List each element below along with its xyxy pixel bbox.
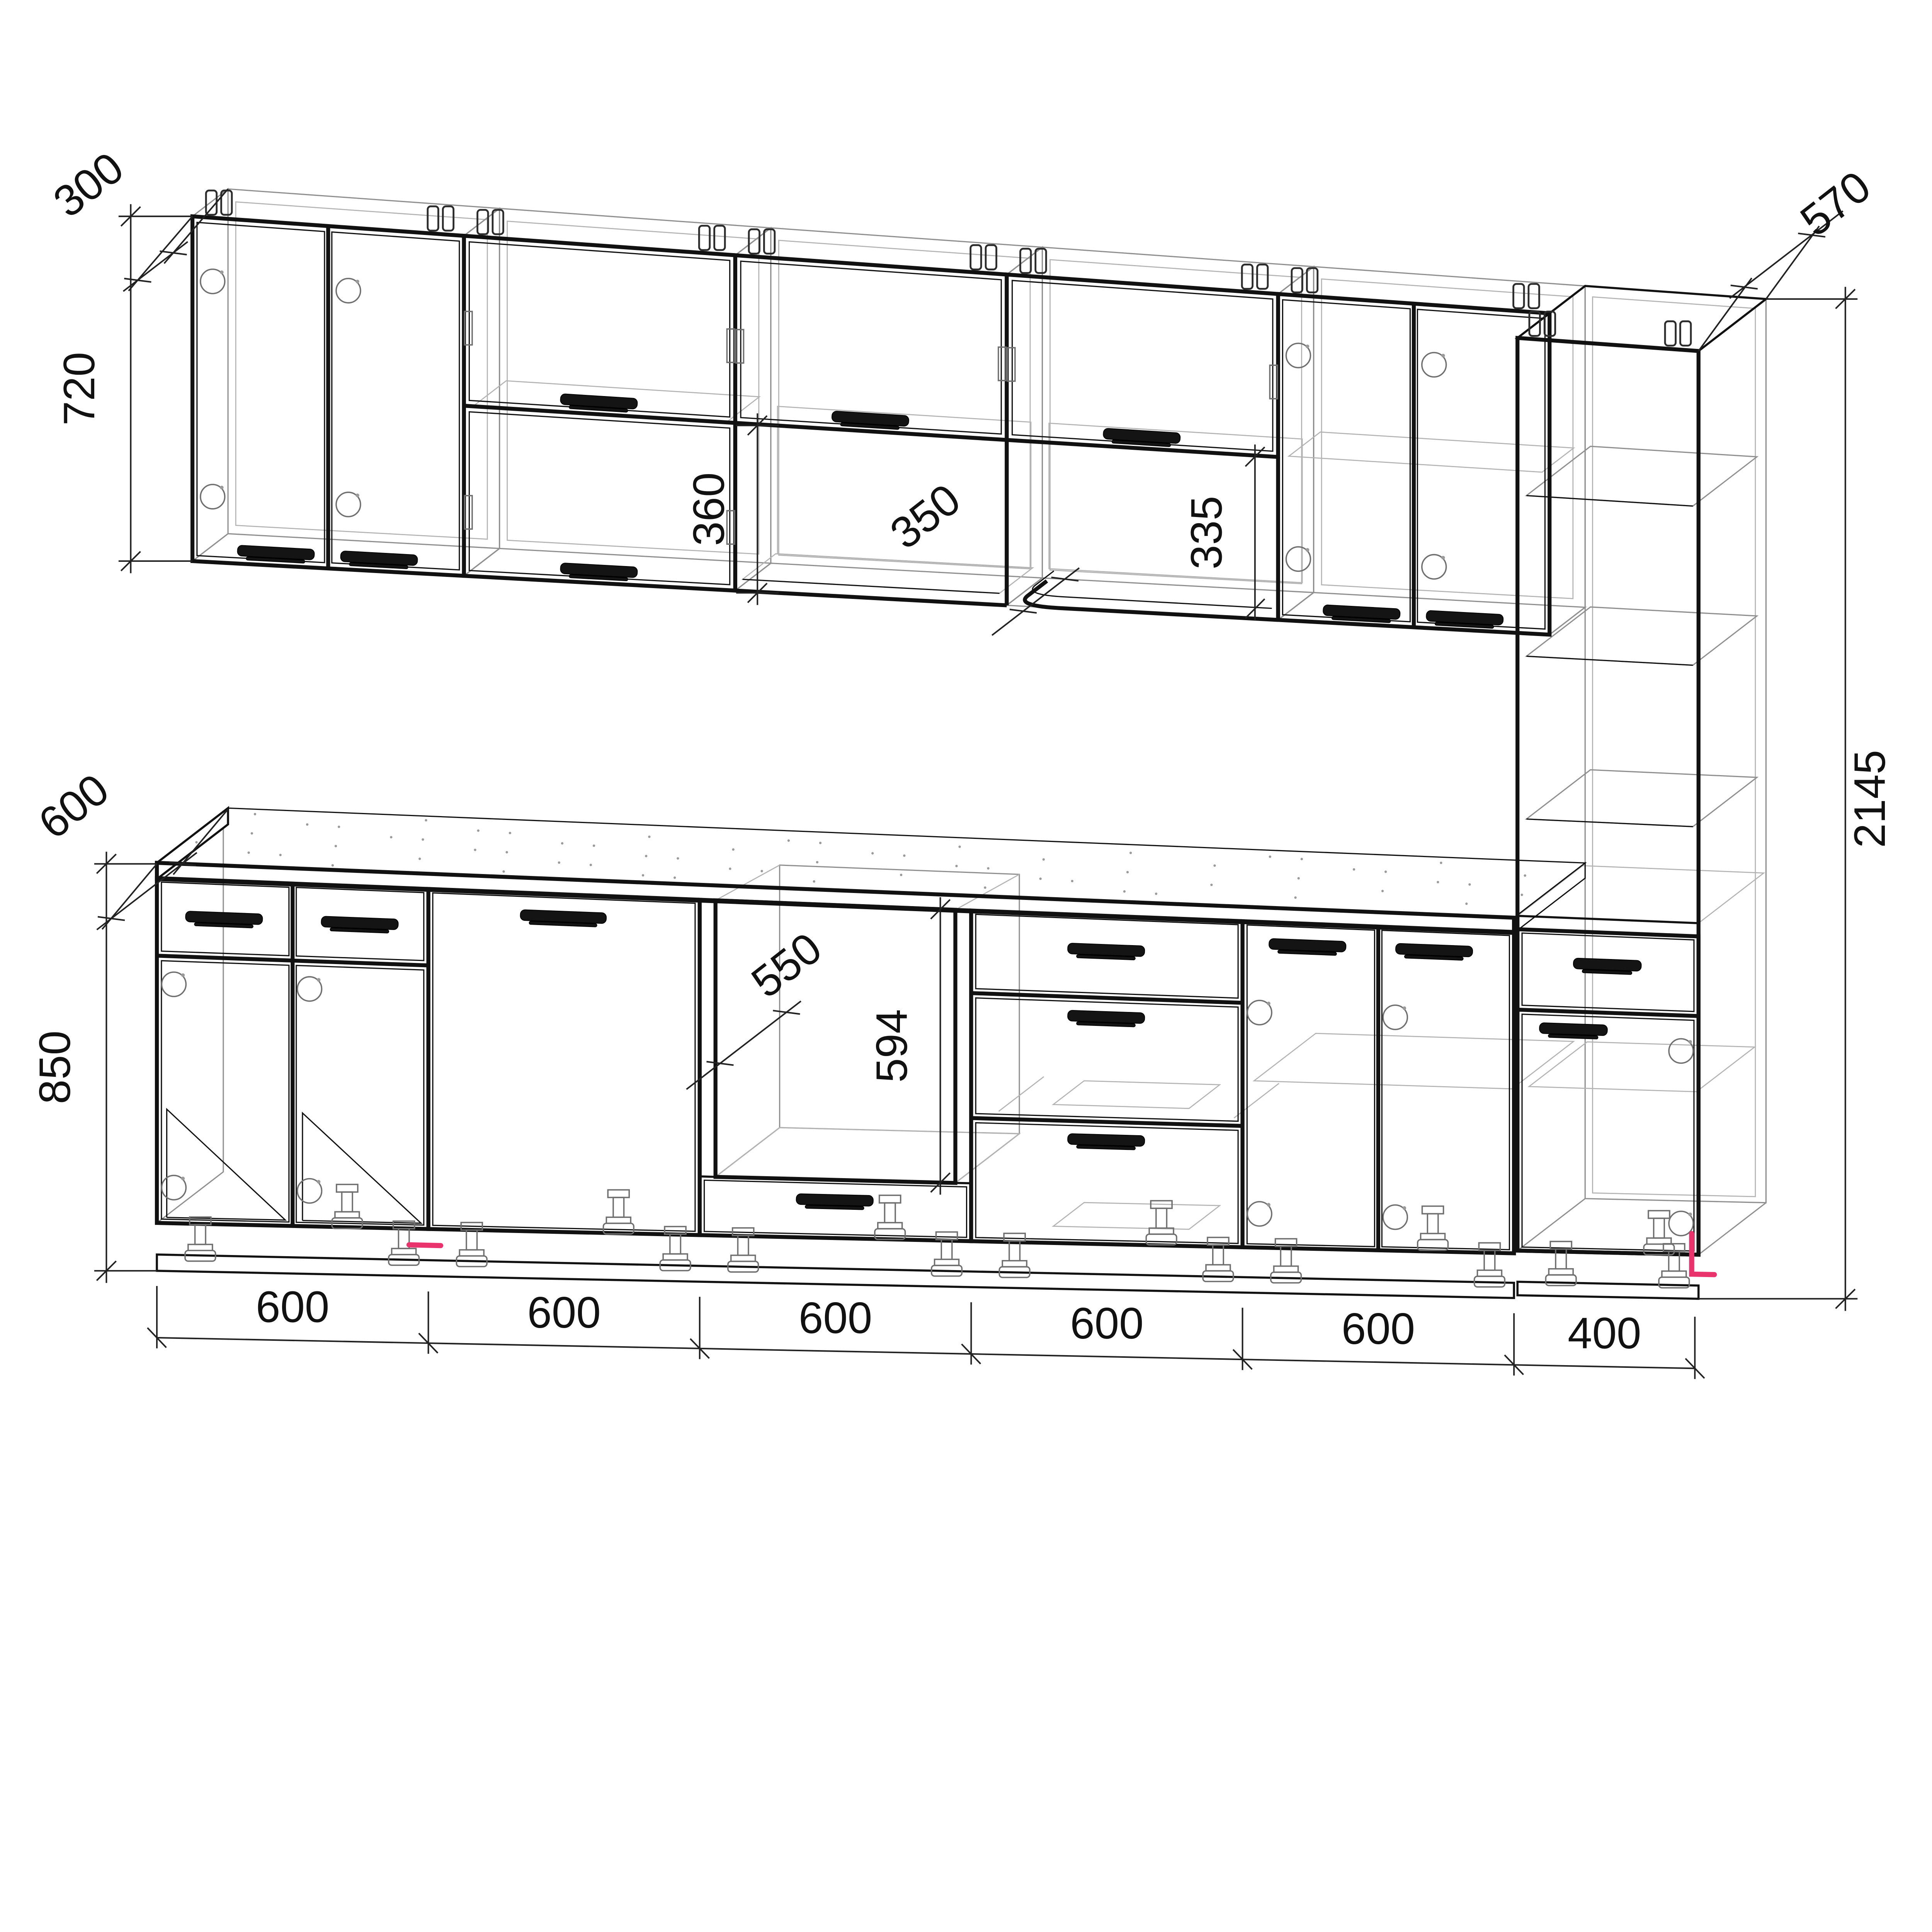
counter-speckle xyxy=(1520,894,1523,896)
dim-label-base-height: 850 xyxy=(31,1031,80,1104)
counter-speckle xyxy=(1301,858,1303,860)
counter-speckle xyxy=(1524,874,1526,877)
back-panel xyxy=(236,202,487,539)
tall-mid-board xyxy=(1517,916,1699,923)
counter-speckle xyxy=(787,839,790,842)
counter-speckle xyxy=(502,870,505,872)
door-handle xyxy=(1323,605,1400,623)
hinge-screw xyxy=(355,493,359,497)
technical-drawing-page: 7203006008503603503355702145550594600600… xyxy=(0,0,1932,1581)
adjustable-foot-icon xyxy=(1644,1211,1674,1255)
hinge-screw xyxy=(1267,1203,1270,1206)
dim-tick xyxy=(773,1010,800,1014)
flap-door xyxy=(1007,275,1278,457)
wall-cabinet-5 xyxy=(1278,294,1550,635)
counter-speckle xyxy=(418,857,421,860)
line xyxy=(955,1183,971,1183)
hinge-screw xyxy=(220,270,223,274)
dim-label-oven-depth: 550 xyxy=(743,923,831,1007)
accent-mark xyxy=(409,1245,441,1246)
adjustable-foot-icon xyxy=(1418,1206,1448,1250)
carcass-front xyxy=(429,889,700,1235)
counter-speckle xyxy=(648,835,650,838)
door-handle xyxy=(796,1194,873,1210)
dim-label-bottom-width-1: 600 xyxy=(256,1283,329,1332)
dim-label-open-shelf-height: 335 xyxy=(1182,496,1231,569)
counter-speckle xyxy=(425,819,427,821)
hanging-bracket-icon xyxy=(714,226,725,250)
plinth-band xyxy=(157,1255,1514,1298)
drawer-split xyxy=(971,1118,1242,1126)
door-inset xyxy=(162,961,289,1222)
back-panel xyxy=(1321,279,1573,599)
flap-door-inset xyxy=(1012,281,1273,451)
handle-bar xyxy=(1068,1134,1145,1146)
counter-speckle xyxy=(958,845,961,848)
hinge-screw xyxy=(317,1180,320,1184)
hinge-screw xyxy=(1441,556,1445,560)
hanging-bracket-icon xyxy=(699,226,710,250)
counter-speckle xyxy=(813,880,815,883)
back-panel xyxy=(1050,260,1302,584)
countertop-left-cap xyxy=(157,808,228,879)
line xyxy=(716,865,780,900)
counter-speckle xyxy=(247,851,250,854)
counter-speckle xyxy=(338,826,340,828)
counter-speckle xyxy=(561,842,563,844)
dim-tick xyxy=(1010,609,1037,613)
counter-speckle xyxy=(195,841,197,844)
dim-label-bottom-width-4: 600 xyxy=(1070,1299,1143,1348)
counter-speckle xyxy=(306,823,308,826)
carcass-front xyxy=(971,910,1242,1247)
counter-speckle xyxy=(729,867,731,870)
line xyxy=(1699,278,1752,351)
dim-label-oven-height: 594 xyxy=(867,1009,917,1083)
hardware-layer xyxy=(162,190,1693,1288)
base-cabinet-3 xyxy=(700,900,971,1242)
curved-shelf-edge xyxy=(1025,581,1278,620)
carcass-front xyxy=(1517,929,1699,1255)
door-handle xyxy=(560,563,638,582)
door-handle xyxy=(340,551,418,570)
counter-speckle xyxy=(279,854,282,856)
door-swing-mark xyxy=(303,1113,421,1223)
hinge-screw xyxy=(220,486,223,489)
adjustable-foot-icon xyxy=(1146,1201,1177,1245)
door-handle xyxy=(1395,943,1473,961)
hinge-screw xyxy=(181,1177,185,1180)
shelf xyxy=(1289,432,1574,472)
door-inset xyxy=(332,232,459,570)
hanging-bracket-icon xyxy=(1242,265,1253,289)
counter-speckle xyxy=(506,851,508,853)
adjustable-foot-icon xyxy=(932,1232,962,1276)
flap-inset xyxy=(469,242,730,417)
dim-label-wall-height: 720 xyxy=(55,352,104,425)
dim-label-tall-depth: 570 xyxy=(1791,162,1879,246)
hanging-bracket-icon xyxy=(428,206,439,231)
base-cabinet-4 xyxy=(971,910,1242,1247)
counter-speckle xyxy=(1468,883,1471,886)
hanging-bracket-icon xyxy=(764,229,775,253)
counter-speckle xyxy=(816,861,818,863)
base-cabinet-6 xyxy=(1517,929,1699,1255)
dim-label-wall-depth: 300 xyxy=(44,143,133,227)
hinge-screw xyxy=(355,280,359,283)
hinge-screw xyxy=(1688,1213,1692,1216)
line xyxy=(999,1077,1044,1111)
door-handle xyxy=(321,916,398,933)
flap-door-inset xyxy=(741,261,1001,434)
counter-speckle xyxy=(760,870,763,872)
bottom-dimension-line xyxy=(157,1338,1695,1368)
dim-label-counter-depth: 600 xyxy=(30,765,118,849)
door-inset xyxy=(296,965,424,1225)
door-inset xyxy=(197,223,325,563)
door-handle xyxy=(1426,611,1503,629)
hinge-screw xyxy=(181,973,185,977)
counter-speckle xyxy=(1465,903,1468,905)
hinge-screw xyxy=(1267,1002,1270,1005)
counter-speckle xyxy=(593,844,595,847)
counter-speckle xyxy=(1269,855,1271,858)
counter-speckle xyxy=(254,813,256,815)
wall-cabinet-4 xyxy=(1007,275,1278,620)
door-handle xyxy=(1573,958,1641,975)
countertop-top xyxy=(157,808,1585,918)
counter-speckle xyxy=(871,852,874,854)
oven-cavity xyxy=(716,900,956,1183)
counter-speckle xyxy=(673,876,676,879)
tall-shelf-edge xyxy=(1526,819,1693,827)
counter-speckle xyxy=(477,830,480,832)
counter-speckle xyxy=(1294,896,1296,899)
door-handle xyxy=(1269,939,1346,956)
hinge-screw xyxy=(1403,1206,1406,1210)
counter-speckle xyxy=(677,857,679,859)
counter-speckle xyxy=(251,832,253,835)
hinge-screw xyxy=(1441,354,1445,357)
counter-speckle xyxy=(558,861,560,864)
counter-speckle xyxy=(1043,858,1045,861)
counter-speckle xyxy=(645,855,647,857)
counter-speckle xyxy=(1353,868,1355,871)
hanging-bracket-icon xyxy=(1529,284,1539,308)
counter-speckle xyxy=(422,838,424,841)
tall-shelf xyxy=(1526,446,1757,506)
side-panel xyxy=(1549,286,1585,634)
counter-speckle xyxy=(987,867,989,869)
plinth-band xyxy=(1517,1282,1699,1299)
counter-speckle xyxy=(955,865,957,867)
handle-bar xyxy=(796,1194,873,1206)
dim-tick xyxy=(706,1062,733,1065)
door-swing-mark xyxy=(167,1109,286,1220)
carcass-front xyxy=(700,900,971,1242)
hanging-bracket-icon xyxy=(1307,268,1318,293)
hanging-bracket-icon xyxy=(1292,268,1303,293)
wall-cabinet-3 xyxy=(735,255,1007,605)
dim-label-niche-height: 360 xyxy=(685,473,734,546)
counter-speckle xyxy=(903,854,905,857)
line xyxy=(1766,226,1819,299)
door-inset xyxy=(433,893,695,1231)
counter-speckle xyxy=(1123,890,1126,893)
line xyxy=(687,1001,801,1089)
dim-label-bottom-width-6: 400 xyxy=(1568,1309,1641,1358)
door-inset xyxy=(1417,310,1545,629)
door-handle xyxy=(1539,1023,1607,1039)
base-cabinet-2 xyxy=(429,889,700,1235)
tall-mid-top xyxy=(1517,866,1764,923)
door-handle xyxy=(520,910,607,927)
adjustable-foot-icon xyxy=(999,1233,1030,1277)
side-panel xyxy=(192,189,228,561)
counter-speckle xyxy=(1155,893,1157,895)
handle-bar xyxy=(1573,958,1641,971)
door-inset xyxy=(1522,1014,1694,1251)
drawer-box xyxy=(1053,1081,1220,1109)
line xyxy=(955,874,1019,910)
hanging-bracket-icon xyxy=(1257,265,1268,289)
line xyxy=(123,242,188,291)
counter-speckle xyxy=(474,849,476,851)
line xyxy=(700,1177,716,1177)
drawer-box xyxy=(1053,1202,1220,1229)
dim-label-niche-depth: 350 xyxy=(881,474,969,558)
counter-speckle xyxy=(642,874,644,876)
counter-speckle xyxy=(332,864,334,866)
oven-cavity-floor xyxy=(716,1128,1019,1183)
counter-speckle xyxy=(1440,862,1442,864)
counter-speckle xyxy=(390,836,392,838)
hanging-bracket-icon xyxy=(206,190,217,215)
dim-label-bottom-width-5: 600 xyxy=(1342,1304,1415,1354)
counter-speckle xyxy=(509,832,511,834)
counter-speckle xyxy=(732,848,734,850)
handle-bar xyxy=(1539,1023,1607,1036)
tall-back xyxy=(1585,286,1766,1203)
door-handle xyxy=(560,394,638,413)
counter-speckle xyxy=(819,842,821,844)
dim-label-tall-height: 2145 xyxy=(1845,750,1895,848)
hanging-bracket-icon xyxy=(971,245,981,269)
counter-speckle xyxy=(590,864,592,866)
counter-speckle xyxy=(335,845,337,847)
counter-speckle xyxy=(1213,864,1216,867)
hanging-bracket-icon xyxy=(1036,249,1046,273)
counter-speckle xyxy=(984,886,986,889)
dim-label-bottom-width-3: 600 xyxy=(799,1294,872,1343)
tall-shelf xyxy=(1526,607,1757,665)
hanging-bracket-icon xyxy=(493,210,503,234)
counter-speckle xyxy=(1129,852,1132,854)
hinge-screw xyxy=(1688,1040,1692,1044)
hanging-bracket-icon xyxy=(1680,321,1691,345)
tall-shelf-edge xyxy=(1526,656,1693,665)
countertop-right-cap xyxy=(1514,863,1585,933)
counter-speckle xyxy=(1298,877,1300,879)
hanging-bracket-icon xyxy=(1514,284,1524,308)
door-handle xyxy=(1067,1010,1145,1027)
adjustable-foot-icon xyxy=(1203,1237,1233,1281)
hinge-screw xyxy=(1306,548,1309,551)
hanging-bracket-icon xyxy=(443,206,454,231)
dim-label-bottom-width-2: 600 xyxy=(527,1288,600,1337)
drawer-split xyxy=(971,993,1242,1003)
counter-speckle xyxy=(1071,880,1073,882)
hanging-bracket-icon xyxy=(1020,249,1031,273)
adjustable-foot-icon xyxy=(603,1190,634,1234)
door-handle xyxy=(1067,943,1145,960)
counter-speckle xyxy=(1437,881,1439,883)
hinge-screw xyxy=(1306,345,1309,348)
counter-speckle xyxy=(1126,871,1129,873)
hidden-lines-layer xyxy=(157,189,1766,1255)
shelf xyxy=(1254,1033,1573,1089)
hinge-screw xyxy=(1403,1006,1406,1010)
door-inset xyxy=(1247,925,1374,1247)
hinge-screw xyxy=(317,978,320,981)
counter-speckle xyxy=(900,874,902,876)
door-inset xyxy=(1382,930,1509,1250)
counter-speckle xyxy=(1210,884,1213,886)
line xyxy=(1517,1199,1585,1251)
outline-layer xyxy=(157,216,1766,1299)
kitchen-elevation-drawing: 7203006008503603503355702145550594600600… xyxy=(0,0,1932,1581)
door-handle xyxy=(185,911,263,928)
door-handle xyxy=(237,545,315,564)
counter-speckle xyxy=(1384,871,1387,873)
wall-cabinet-1 xyxy=(192,216,464,576)
tall-shelf xyxy=(1526,770,1757,827)
hanging-bracket-icon xyxy=(986,245,997,269)
hanging-bracket-icon xyxy=(1665,321,1676,345)
counter-speckle xyxy=(1381,890,1384,892)
door-handle xyxy=(1068,1134,1145,1150)
adjustable-foot-icon xyxy=(1271,1239,1301,1283)
adjustable-foot-icon xyxy=(875,1195,905,1239)
counter-speckle xyxy=(1039,878,1042,880)
